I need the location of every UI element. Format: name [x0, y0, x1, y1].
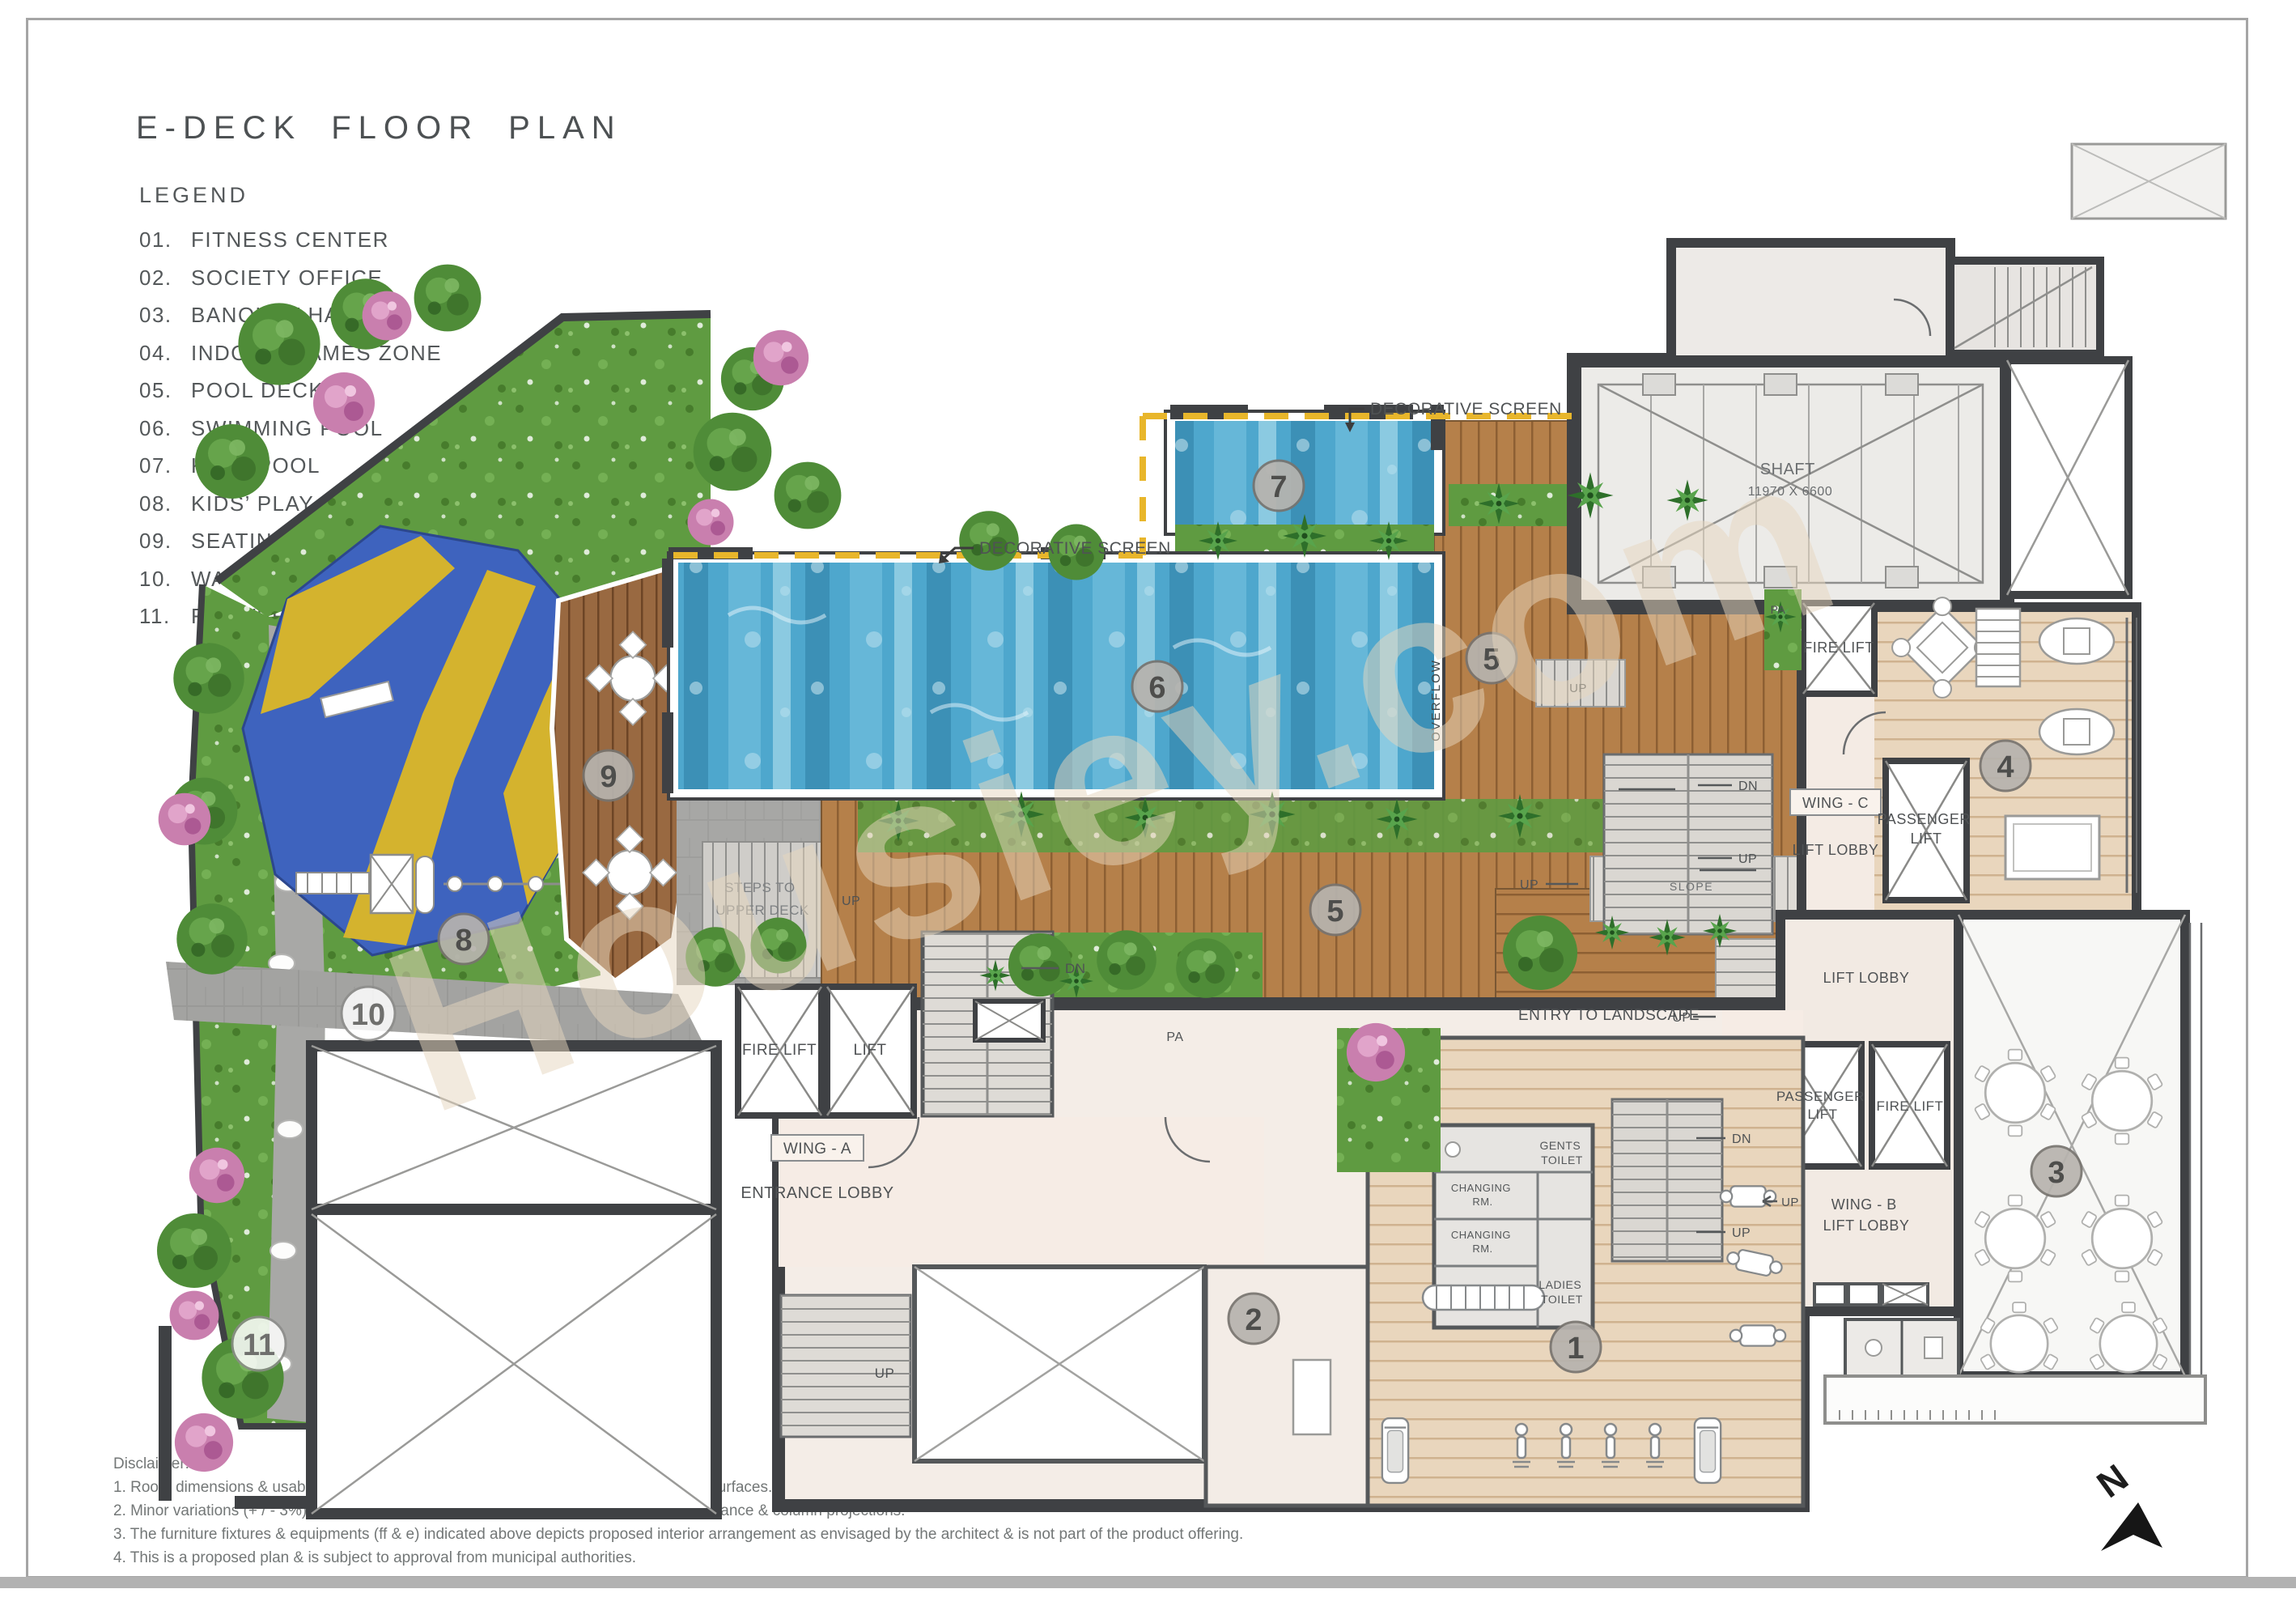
svg-text:11: 11	[243, 1328, 275, 1362]
fitness-stair	[1612, 1099, 1722, 1261]
svg-text:9: 9	[600, 760, 617, 794]
svg-text:2: 2	[1245, 1303, 1262, 1337]
wing-c-label: WING - C	[1790, 789, 1881, 815]
svg-text:5: 5	[1326, 894, 1343, 928]
top-right-staircase	[1950, 261, 2100, 354]
marker-7: 7	[1254, 461, 1304, 511]
floor-plan-sheet: E-DECK FLOOR PLAN LEGEND 01.FITNESS CENT…	[0, 0, 2296, 1623]
svg-text:WING - A: WING - A	[783, 1141, 851, 1158]
fire-lift-wing-b-label: FIRE LIFT	[1877, 1098, 1944, 1114]
svg-text:WING - C: WING - C	[1802, 795, 1869, 811]
north-arrow: N	[2089, 1455, 2162, 1551]
inner-void-room	[915, 1267, 1204, 1461]
lift-lobby-wing-c-label: LIFT LOBBY	[1793, 842, 1879, 858]
void-room	[2007, 360, 2128, 595]
svg-text:UP: UP	[1738, 852, 1757, 866]
svg-text:UP: UP	[1781, 1196, 1799, 1209]
marker-2: 2	[1229, 1294, 1279, 1344]
svg-text:DECORATIVE SCREEN: DECORATIVE SCREEN	[979, 539, 1171, 558]
slope-label: SLOPE	[1670, 880, 1713, 893]
svg-text:7: 7	[1270, 470, 1287, 504]
room-above-shaft	[1671, 243, 1950, 360]
svg-text:3: 3	[2048, 1156, 2065, 1190]
pa-label: PA	[1166, 1030, 1183, 1044]
sheet-bottom-edge	[0, 1577, 2296, 1588]
banquet-toilets	[1845, 1319, 1959, 1376]
svg-text:DN: DN	[1732, 1132, 1751, 1146]
marker-4: 4	[1980, 741, 2031, 791]
roof-hatch	[2072, 144, 2226, 219]
svg-text:UP: UP	[1672, 1011, 1691, 1025]
up-label-south-stair: UP	[875, 1366, 895, 1381]
floor-plan-drawing: DECORATIVE SCREEN DECORATIVE SCREEN SHAF…	[0, 0, 2296, 1623]
marker-1: 1	[1551, 1322, 1601, 1372]
wing-a-label: WING - A	[771, 1135, 864, 1161]
marker-11: 11	[232, 1317, 286, 1370]
marker-5b: 5	[1310, 885, 1360, 935]
svg-text:UP: UP	[1732, 1226, 1751, 1240]
svg-text:DN: DN	[1738, 780, 1758, 793]
svg-text:UP: UP	[1520, 878, 1538, 892]
svg-text:DECORATIVE SCREEN: DECORATIVE SCREEN	[1370, 400, 1562, 418]
marker-3: 3	[2031, 1146, 2082, 1196]
svg-text:DN: DN	[1065, 961, 1086, 976]
svg-text:N: N	[2089, 1455, 2135, 1506]
entrance-lobby-label: ENTRANCE LOBBY	[741, 1184, 893, 1202]
lift-wing-a-label: LIFT	[853, 1042, 886, 1059]
svg-text:10: 10	[351, 998, 385, 1032]
lift-lobby-wing-b-top-label: LIFT LOBBY	[1823, 970, 1910, 986]
svg-text:4: 4	[1997, 750, 2014, 784]
marker-9: 9	[584, 750, 634, 801]
svg-text:1: 1	[1567, 1332, 1584, 1366]
society-office	[1206, 1267, 1368, 1506]
